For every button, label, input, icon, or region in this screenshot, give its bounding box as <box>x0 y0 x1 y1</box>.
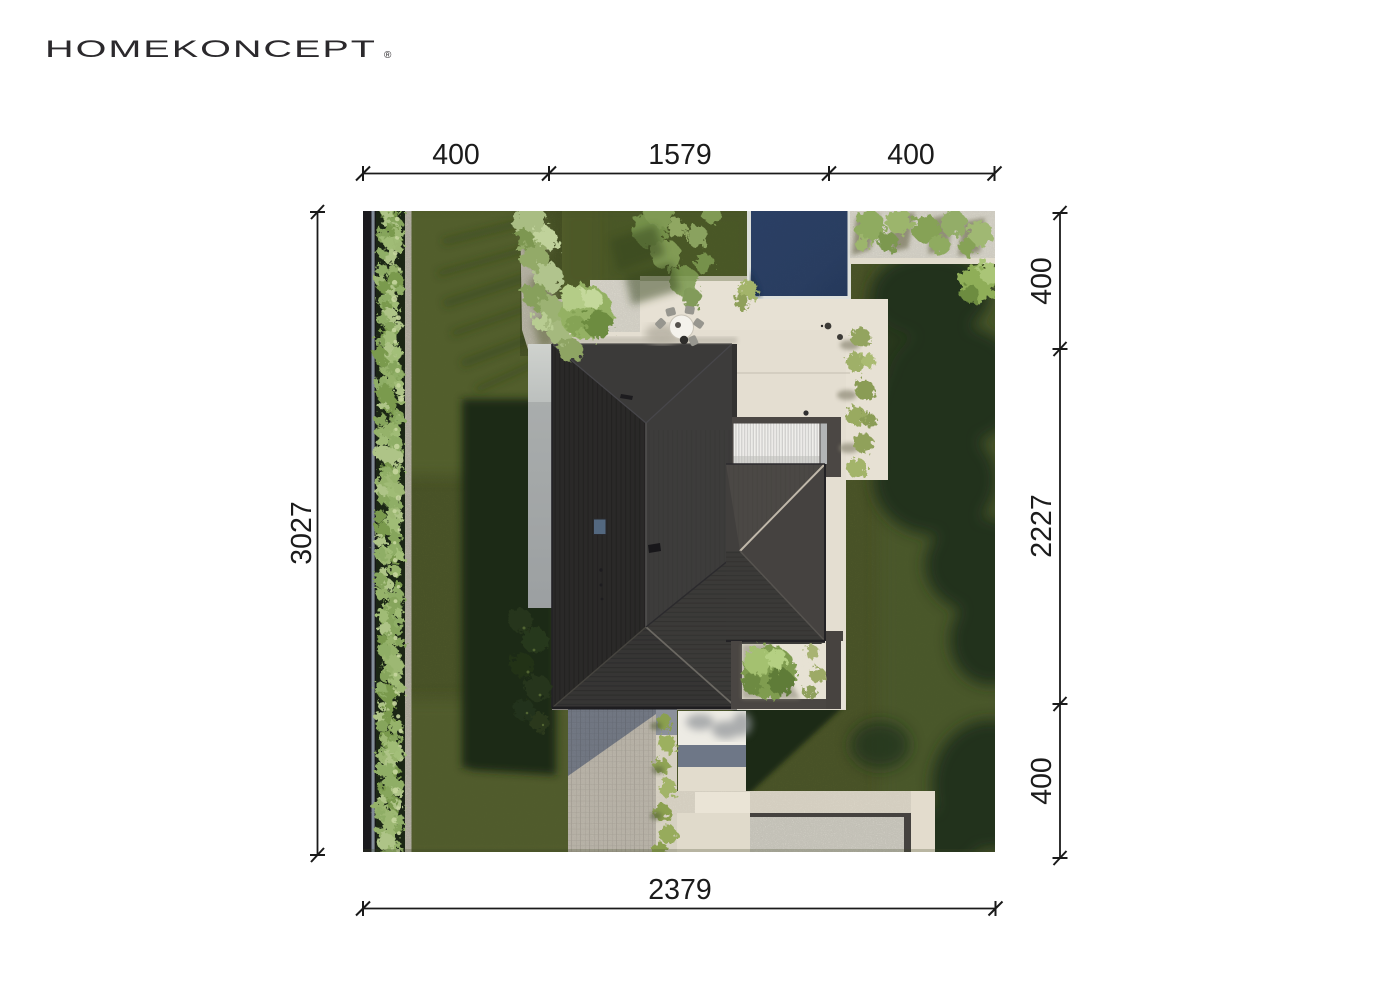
svg-text:2227: 2227 <box>1026 494 1058 557</box>
svg-text:1579: 1579 <box>648 139 711 171</box>
svg-text:®: ® <box>384 50 392 61</box>
svg-text:400: 400 <box>1026 757 1058 805</box>
svg-text:2379: 2379 <box>648 874 711 906</box>
svg-text:HOMEKONCEPT: HOMEKONCEPT <box>45 35 377 62</box>
svg-text:400: 400 <box>432 139 480 171</box>
svg-text:3027: 3027 <box>286 501 318 564</box>
svg-text:400: 400 <box>887 139 935 171</box>
svg-text:400: 400 <box>1026 257 1058 305</box>
